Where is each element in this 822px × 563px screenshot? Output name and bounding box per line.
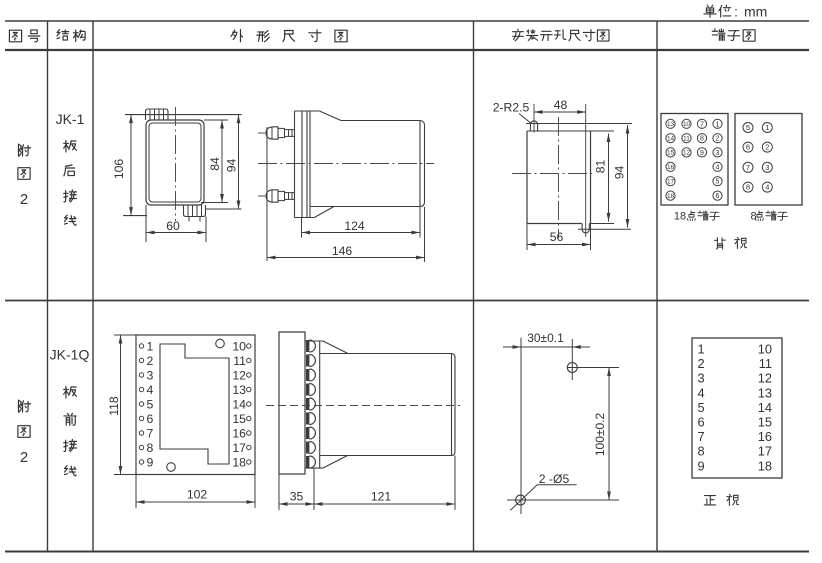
svg-text:35: 35	[290, 490, 304, 504]
svg-text:12: 12	[683, 150, 691, 157]
svg-text:102: 102	[187, 487, 208, 501]
svg-text:2: 2	[20, 191, 28, 208]
svg-text:10: 10	[758, 342, 772, 357]
svg-text:30±0.1: 30±0.1	[527, 331, 564, 345]
svg-text:118: 118	[107, 396, 121, 416]
svg-text:94: 94	[224, 159, 238, 173]
svg-text:12: 12	[758, 371, 772, 386]
svg-text:9: 9	[698, 458, 705, 473]
svg-text:15: 15	[667, 150, 675, 157]
svg-text:4: 4	[765, 183, 769, 192]
svg-text:2-R2.5: 2-R2.5	[493, 101, 530, 115]
svg-text:1: 1	[716, 121, 720, 128]
svg-text:100±0.2: 100±0.2	[593, 413, 607, 457]
svg-text:81: 81	[593, 160, 607, 174]
svg-text:18: 18	[758, 458, 772, 473]
svg-text::: :	[734, 4, 738, 19]
svg-text:5: 5	[147, 397, 154, 411]
svg-text:13: 13	[667, 121, 675, 128]
svg-text:8: 8	[700, 136, 704, 143]
svg-text:8: 8	[746, 183, 750, 192]
svg-text:6: 6	[147, 412, 154, 426]
svg-text:JK-1: JK-1	[56, 111, 85, 127]
svg-text:15: 15	[758, 415, 772, 430]
svg-text:2: 2	[765, 143, 769, 152]
svg-text:8: 8	[147, 441, 154, 455]
svg-text:18: 18	[232, 455, 246, 469]
svg-text:4: 4	[147, 383, 154, 397]
svg-text:14: 14	[758, 400, 772, 415]
svg-text:1: 1	[698, 342, 705, 357]
svg-text:1: 1	[147, 339, 154, 353]
svg-text:12: 12	[232, 368, 246, 382]
svg-text:60: 60	[166, 219, 180, 233]
svg-text:14: 14	[667, 135, 675, 142]
svg-text:18: 18	[674, 210, 686, 222]
svg-text:6: 6	[746, 143, 750, 152]
svg-text:4: 4	[698, 385, 705, 400]
svg-text:3: 3	[147, 368, 154, 382]
svg-text:7: 7	[698, 429, 705, 444]
svg-text:13: 13	[758, 385, 772, 400]
svg-text:8: 8	[698, 444, 705, 459]
svg-text:56: 56	[550, 230, 564, 244]
svg-text:7: 7	[746, 163, 750, 172]
svg-text:121: 121	[371, 490, 392, 504]
svg-text:14: 14	[232, 397, 246, 411]
svg-text:3: 3	[765, 163, 769, 172]
svg-text:106: 106	[112, 159, 126, 180]
svg-text:2: 2	[147, 354, 154, 368]
svg-text:16: 16	[758, 429, 772, 444]
svg-text:84: 84	[208, 157, 222, 171]
svg-text:18: 18	[667, 193, 675, 200]
svg-text:94: 94	[612, 166, 626, 180]
svg-text:9: 9	[147, 455, 154, 469]
svg-text:17: 17	[667, 178, 675, 185]
svg-text:JK-1Q: JK-1Q	[50, 347, 90, 363]
svg-text:4: 4	[716, 164, 720, 171]
svg-text:7: 7	[147, 426, 154, 440]
svg-text:5: 5	[746, 123, 750, 132]
svg-text:3: 3	[716, 150, 720, 157]
svg-text:146: 146	[332, 244, 353, 258]
svg-text:2: 2	[716, 136, 720, 143]
svg-text:11: 11	[233, 354, 246, 368]
svg-text:6: 6	[698, 415, 705, 430]
svg-text:3: 3	[698, 371, 705, 386]
svg-text:48: 48	[554, 98, 568, 112]
svg-text:10: 10	[683, 121, 691, 128]
svg-text:15: 15	[232, 412, 246, 426]
svg-text:17: 17	[232, 441, 246, 455]
svg-text:6: 6	[716, 193, 720, 200]
svg-text:2 -Ø5: 2 -Ø5	[539, 472, 570, 486]
svg-text:10: 10	[232, 339, 246, 353]
svg-text:16: 16	[232, 426, 246, 440]
svg-text:2: 2	[20, 449, 28, 466]
svg-text:16: 16	[667, 164, 675, 171]
svg-text:mm: mm	[744, 3, 767, 19]
svg-text:124: 124	[344, 219, 365, 233]
svg-text:1: 1	[765, 123, 769, 132]
svg-text:9: 9	[700, 150, 704, 157]
svg-text:17: 17	[758, 444, 772, 459]
svg-text:2: 2	[698, 356, 705, 371]
svg-text:11: 11	[683, 135, 690, 142]
svg-text:5: 5	[698, 400, 705, 415]
svg-text:7: 7	[700, 121, 704, 128]
svg-text:11: 11	[759, 356, 772, 371]
svg-text:5: 5	[716, 179, 720, 186]
svg-text:13: 13	[232, 383, 246, 397]
